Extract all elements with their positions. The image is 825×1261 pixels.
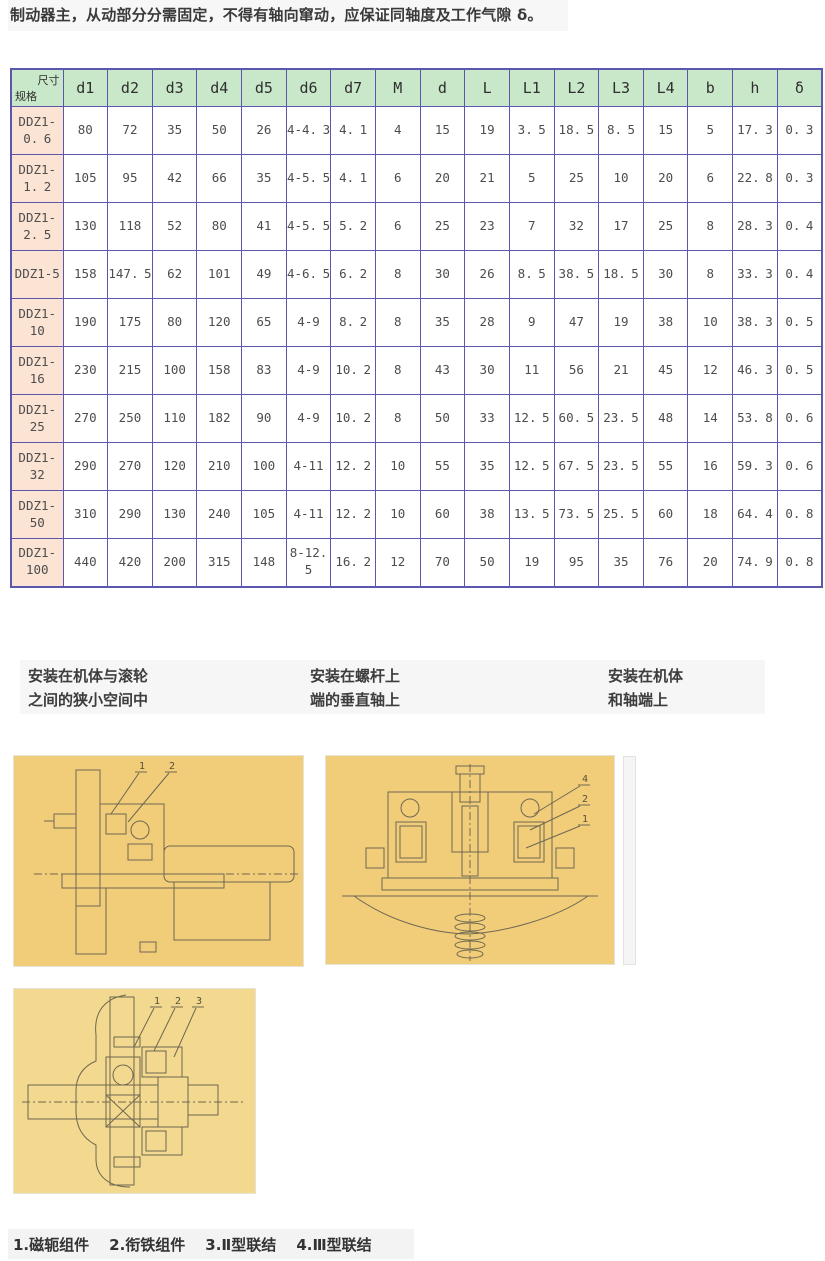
spec-value-cell: 23. 5 <box>599 395 644 443</box>
spec-value-cell: 4-5. 5 <box>286 203 331 251</box>
spec-value-cell: 38 <box>643 299 688 347</box>
spec-value-cell: 10. 2 <box>331 347 376 395</box>
legend-item: 3.Ⅱ型联结 <box>205 1234 276 1255</box>
spec-value-cell: 18. 5 <box>554 107 599 155</box>
col-header-L3: L3 <box>599 69 644 107</box>
brake-section-drawing-3: 1 2 3 <box>14 989 255 1193</box>
spec-value-cell: 5 <box>688 107 733 155</box>
corner-label-size: 尺寸 <box>38 72 60 88</box>
spec-value-cell: 240 <box>197 491 242 539</box>
spec-value-cell: 290 <box>108 491 153 539</box>
spec-value-cell: 4-6. 5 <box>286 251 331 299</box>
spec-value-cell: 100 <box>242 443 287 491</box>
spec-value-cell: 0. 4 <box>777 251 822 299</box>
spec-value-cell: 105 <box>63 155 108 203</box>
spec-value-cell: 0. 3 <box>777 107 822 155</box>
spec-value-cell: 8-12. 5 <box>286 539 331 587</box>
spec-value-cell: 20 <box>688 539 733 587</box>
spec-value-cell: 73. 5 <box>554 491 599 539</box>
caption-line: 安装在机体与滚轮 <box>28 664 148 688</box>
svg-text:1: 1 <box>139 761 145 772</box>
spec-value-cell: 4-5. 5 <box>286 155 331 203</box>
spec-value-cell: 6. 2 <box>331 251 376 299</box>
col-header-d3: d3 <box>152 69 197 107</box>
spec-value-cell: 120 <box>197 299 242 347</box>
spec-value-cell: 55 <box>420 443 465 491</box>
legend-item: 4.Ⅲ型联结 <box>296 1234 371 1255</box>
row-spec-label: DDZ1-1. 2 <box>11 155 63 203</box>
figure-shaft-end: 1 2 3 <box>13 988 256 1194</box>
spec-value-cell: 11 <box>509 347 554 395</box>
spec-value-cell: 19 <box>509 539 554 587</box>
spec-value-cell: 38. 5 <box>554 251 599 299</box>
row-spec-label: DDZ1-0. 6 <box>11 107 63 155</box>
spec-value-cell: 440 <box>63 539 108 587</box>
spec-value-cell: 35 <box>152 107 197 155</box>
spec-value-cell: 4-9 <box>286 347 331 395</box>
spec-value-cell: 6 <box>375 203 420 251</box>
svg-text:3: 3 <box>196 996 202 1007</box>
captions-strip: 安装在机体与滚轮 之间的狭小空间中 安装在螺杆上 端的垂直轴上 安装在机体 和轴… <box>20 660 765 714</box>
spec-value-cell: 10 <box>375 443 420 491</box>
spec-value-cell: 18. 5 <box>599 251 644 299</box>
spec-value-cell: 33 <box>465 395 510 443</box>
spec-value-cell: 23. 5 <box>599 443 644 491</box>
table-row: DDZ1-503102901302401054-1112. 210603813.… <box>11 491 822 539</box>
spec-value-cell: 80 <box>152 299 197 347</box>
spec-value-cell: 9 <box>509 299 554 347</box>
spec-value-cell: 175 <box>108 299 153 347</box>
spec-value-cell: 52 <box>152 203 197 251</box>
spec-value-cell: 15 <box>420 107 465 155</box>
legend-item: 2.衔铁组件 <box>109 1234 185 1255</box>
spec-value-cell: 230 <box>63 347 108 395</box>
col-header-d: d <box>420 69 465 107</box>
spec-value-cell: 35 <box>465 443 510 491</box>
col-header-L4: L4 <box>643 69 688 107</box>
corner-label-model: 规格 <box>15 88 37 104</box>
svg-text:2: 2 <box>175 996 181 1007</box>
spec-value-cell: 18 <box>688 491 733 539</box>
svg-text:2: 2 <box>169 761 175 772</box>
spec-value-cell: 32 <box>554 203 599 251</box>
spec-value-cell: 8 <box>375 251 420 299</box>
spec-value-cell: 74. 9 <box>733 539 778 587</box>
spec-value-cell: 26 <box>465 251 510 299</box>
spec-value-cell: 0. 5 <box>777 347 822 395</box>
table-row: DDZ1-5158147. 562101494-6. 56. 2830268. … <box>11 251 822 299</box>
spec-value-cell: 4. 1 <box>331 155 376 203</box>
svg-text:4: 4 <box>582 774 588 785</box>
spec-value-cell: 28. 3 <box>733 203 778 251</box>
row-spec-label: DDZ1-2. 5 <box>11 203 63 251</box>
corner-cell: 尺寸 规格 <box>11 69 63 107</box>
spec-value-cell: 95 <box>554 539 599 587</box>
caption-line: 安装在机体 <box>608 664 683 688</box>
spec-value-cell: 118 <box>108 203 153 251</box>
spec-value-cell: 3. 5 <box>509 107 554 155</box>
spec-value-cell: 8. 5 <box>509 251 554 299</box>
spec-value-cell: 270 <box>108 443 153 491</box>
brake-section-drawing-1: 1 2 <box>14 756 303 966</box>
spec-value-cell: 5. 2 <box>331 203 376 251</box>
spec-value-cell: 130 <box>63 203 108 251</box>
spec-value-cell: 315 <box>197 539 242 587</box>
spec-value-cell: 0. 3 <box>777 155 822 203</box>
figure-screw-shaft: 4 2 1 <box>325 755 615 965</box>
spec-value-cell: 49 <box>242 251 287 299</box>
svg-text:1: 1 <box>154 996 160 1007</box>
spec-value-cell: 130 <box>152 491 197 539</box>
spec-value-cell: 17 <box>599 203 644 251</box>
col-header-M: M <box>375 69 420 107</box>
col-header-h: h <box>733 69 778 107</box>
spec-value-cell: 76 <box>643 539 688 587</box>
table-row: DDZ1-1. 2105954266354-5. 54. 16202152510… <box>11 155 822 203</box>
spec-value-cell: 250 <box>108 395 153 443</box>
spec-value-cell: 90 <box>242 395 287 443</box>
col-header-L1: L1 <box>509 69 554 107</box>
col-header-d2: d2 <box>108 69 153 107</box>
spec-value-cell: 28 <box>465 299 510 347</box>
spec-value-cell: 0. 4 <box>777 203 822 251</box>
spec-value-cell: 10 <box>599 155 644 203</box>
spec-value-cell: 4-9 <box>286 299 331 347</box>
spec-value-cell: 25 <box>554 155 599 203</box>
spec-value-cell: 7 <box>509 203 554 251</box>
spec-value-cell: 48 <box>643 395 688 443</box>
spec-value-cell: 158 <box>63 251 108 299</box>
spec-value-cell: 67. 5 <box>554 443 599 491</box>
spec-value-cell: 101 <box>197 251 242 299</box>
spec-value-cell: 60. 5 <box>554 395 599 443</box>
spec-value-cell: 182 <box>197 395 242 443</box>
spec-value-cell: 30 <box>643 251 688 299</box>
spec-value-cell: 38 <box>465 491 510 539</box>
spec-value-cell: 47 <box>554 299 599 347</box>
caption-screw-shaft: 安装在螺杆上 端的垂直轴上 <box>310 664 400 712</box>
spec-value-cell: 10 <box>688 299 733 347</box>
spec-value-cell: 8. 2 <box>331 299 376 347</box>
spec-value-cell: 4 <box>375 107 420 155</box>
row-spec-label: DDZ1-32 <box>11 443 63 491</box>
spec-value-cell: 100 <box>152 347 197 395</box>
spec-value-cell: 35 <box>420 299 465 347</box>
spec-value-cell: 21 <box>599 347 644 395</box>
spec-value-cell: 8 <box>375 347 420 395</box>
spec-value-cell: 26 <box>242 107 287 155</box>
spec-value-cell: 62 <box>152 251 197 299</box>
table-row: DDZ1-2. 51301185280414-5. 55. 2625237321… <box>11 203 822 251</box>
col-header-d1: d1 <box>63 69 108 107</box>
table-row: DDZ1-1004404202003151488-12. 516. 212705… <box>11 539 822 587</box>
col-header-b: b <box>688 69 733 107</box>
table-header-row: 尺寸 规格 d1d2d3d4d5d6d7MdLL1L2L3L4bhδ <box>11 69 822 107</box>
spec-value-cell: 290 <box>63 443 108 491</box>
spec-value-cell: 35 <box>242 155 287 203</box>
spec-value-cell: 200 <box>152 539 197 587</box>
row-spec-label: DDZ1-100 <box>11 539 63 587</box>
page: 制动器主，从动部分分需固定，不得有轴向窜动，应保证同轴度及工作气隙 δ。 尺寸 … <box>0 0 825 1261</box>
caption-line: 安装在螺杆上 <box>310 664 400 688</box>
spec-value-cell: 43 <box>420 347 465 395</box>
legend-item: 1.磁轭组件 <box>13 1234 89 1255</box>
spec-value-cell: 21 <box>465 155 510 203</box>
spec-value-cell: 0. 8 <box>777 539 822 587</box>
spec-value-cell: 0. 6 <box>777 443 822 491</box>
spec-value-cell: 80 <box>197 203 242 251</box>
spec-value-cell: 64. 4 <box>733 491 778 539</box>
spec-value-cell: 72 <box>108 107 153 155</box>
spec-value-cell: 15 <box>643 107 688 155</box>
spec-value-cell: 83 <box>242 347 287 395</box>
figure-narrow-space: 1 2 <box>13 755 304 967</box>
spec-value-cell: 30 <box>420 251 465 299</box>
table-row: DDZ1-1019017580120654-98. 28352894719381… <box>11 299 822 347</box>
spec-value-cell: 22. 8 <box>733 155 778 203</box>
spec-value-cell: 270 <box>63 395 108 443</box>
spec-value-cell: 12. 5 <box>509 443 554 491</box>
table-row: DDZ1-0. 680723550264-4. 34. 1415193. 518… <box>11 107 822 155</box>
table-row: DDZ1-16230215100158834-910. 284330115621… <box>11 347 822 395</box>
caption-shaft-end: 安装在机体 和轴端上 <box>608 664 683 712</box>
caption-line: 和轴端上 <box>608 688 683 712</box>
spec-value-cell: 5 <box>509 155 554 203</box>
spec-value-cell: 110 <box>152 395 197 443</box>
spec-value-cell: 8 <box>688 251 733 299</box>
spec-value-cell: 6 <box>688 155 733 203</box>
col-header-d4: d4 <box>197 69 242 107</box>
spec-value-cell: 420 <box>108 539 153 587</box>
spec-value-cell: 60 <box>643 491 688 539</box>
spec-value-cell: 4-11 <box>286 443 331 491</box>
spec-value-cell: 310 <box>63 491 108 539</box>
spec-value-cell: 12. 5 <box>509 395 554 443</box>
spec-value-cell: 12 <box>688 347 733 395</box>
spec-value-cell: 23 <box>465 203 510 251</box>
spec-value-cell: 25. 5 <box>599 491 644 539</box>
spec-value-cell: 14 <box>688 395 733 443</box>
spec-value-cell: 25 <box>420 203 465 251</box>
caption-narrow-space: 安装在机体与滚轮 之间的狭小空间中 <box>28 664 148 712</box>
spec-value-cell: 8 <box>375 299 420 347</box>
spec-value-cell: 50 <box>465 539 510 587</box>
spec-value-cell: 158 <box>197 347 242 395</box>
spec-value-cell: 50 <box>197 107 242 155</box>
spec-value-cell: 6 <box>375 155 420 203</box>
spec-value-cell: 53. 8 <box>733 395 778 443</box>
spec-value-cell: 4-9 <box>286 395 331 443</box>
table-row: DDZ1-25270250110182904-910. 28503312. 56… <box>11 395 822 443</box>
spec-value-cell: 0. 8 <box>777 491 822 539</box>
spec-value-cell: 105 <box>242 491 287 539</box>
spec-value-cell: 19 <box>599 299 644 347</box>
row-spec-label: DDZ1-5 <box>11 251 63 299</box>
spec-value-cell: 80 <box>63 107 108 155</box>
spec-value-cell: 0. 5 <box>777 299 822 347</box>
spec-value-cell: 12. 2 <box>331 491 376 539</box>
spec-value-cell: 10 <box>375 491 420 539</box>
brake-section-drawing-2: 4 2 1 <box>326 756 614 964</box>
spec-value-cell: 13. 5 <box>509 491 554 539</box>
spec-value-cell: 38. 3 <box>733 299 778 347</box>
spec-value-cell: 33. 3 <box>733 251 778 299</box>
spec-value-cell: 16 <box>688 443 733 491</box>
spec-value-cell: 0. 6 <box>777 395 822 443</box>
svg-text:1: 1 <box>582 814 588 825</box>
spec-value-cell: 190 <box>63 299 108 347</box>
spec-value-cell: 46. 3 <box>733 347 778 395</box>
spec-value-cell: 4. 1 <box>331 107 376 155</box>
spec-value-cell: 55 <box>643 443 688 491</box>
caption-line: 之间的狭小空间中 <box>28 688 148 712</box>
spec-value-cell: 25 <box>643 203 688 251</box>
spec-value-cell: 20 <box>643 155 688 203</box>
caption-line: 端的垂直轴上 <box>310 688 400 712</box>
spec-value-cell: 45 <box>643 347 688 395</box>
spec-value-cell: 10. 2 <box>331 395 376 443</box>
spec-value-cell: 4-11 <box>286 491 331 539</box>
svg-text:2: 2 <box>582 794 588 805</box>
spec-value-cell: 8. 5 <box>599 107 644 155</box>
col-header-d7: d7 <box>331 69 376 107</box>
spec-value-cell: 65 <box>242 299 287 347</box>
col-header-L2: L2 <box>554 69 599 107</box>
row-spec-label: DDZ1-16 <box>11 347 63 395</box>
spec-value-cell: 42 <box>152 155 197 203</box>
scroll-strip <box>623 756 636 965</box>
spec-value-cell: 19 <box>465 107 510 155</box>
spec-value-cell: 50 <box>420 395 465 443</box>
row-spec-label: DDZ1-10 <box>11 299 63 347</box>
spec-value-cell: 70 <box>420 539 465 587</box>
spec-value-cell: 20 <box>420 155 465 203</box>
table-row: DDZ1-322902701202101004-1112. 210553512.… <box>11 443 822 491</box>
spec-value-cell: 147. 5 <box>108 251 153 299</box>
spec-value-cell: 56 <box>554 347 599 395</box>
spec-value-cell: 59. 3 <box>733 443 778 491</box>
spec-value-cell: 4-4. 3 <box>286 107 331 155</box>
spec-value-cell: 148 <box>242 539 287 587</box>
intro-text: 制动器主，从动部分分需固定，不得有轴向窜动，应保证同轴度及工作气隙 δ。 <box>10 4 543 25</box>
spec-value-cell: 66 <box>197 155 242 203</box>
spec-value-cell: 16. 2 <box>331 539 376 587</box>
spec-value-cell: 95 <box>108 155 153 203</box>
spec-value-cell: 30 <box>465 347 510 395</box>
spec-value-cell: 12. 2 <box>331 443 376 491</box>
row-spec-label: DDZ1-25 <box>11 395 63 443</box>
col-header-L: L <box>465 69 510 107</box>
spec-value-cell: 17. 3 <box>733 107 778 155</box>
col-header-d6: d6 <box>286 69 331 107</box>
spec-value-cell: 41 <box>242 203 287 251</box>
spec-value-cell: 60 <box>420 491 465 539</box>
spec-value-cell: 35 <box>599 539 644 587</box>
spec-value-cell: 120 <box>152 443 197 491</box>
spec-value-cell: 12 <box>375 539 420 587</box>
spec-value-cell: 8 <box>375 395 420 443</box>
spec-value-cell: 210 <box>197 443 242 491</box>
parts-legend: 1.磁轭组件 2.衔铁组件 3.Ⅱ型联结 4.Ⅲ型联结 <box>8 1229 414 1259</box>
col-header-d5: d5 <box>242 69 287 107</box>
col-header-δ: δ <box>777 69 822 107</box>
row-spec-label: DDZ1-50 <box>11 491 63 539</box>
spec-value-cell: 8 <box>688 203 733 251</box>
spec-value-cell: 215 <box>108 347 153 395</box>
spec-table: 尺寸 规格 d1d2d3d4d5d6d7MdLL1L2L3L4bhδ DDZ1-… <box>10 68 823 588</box>
